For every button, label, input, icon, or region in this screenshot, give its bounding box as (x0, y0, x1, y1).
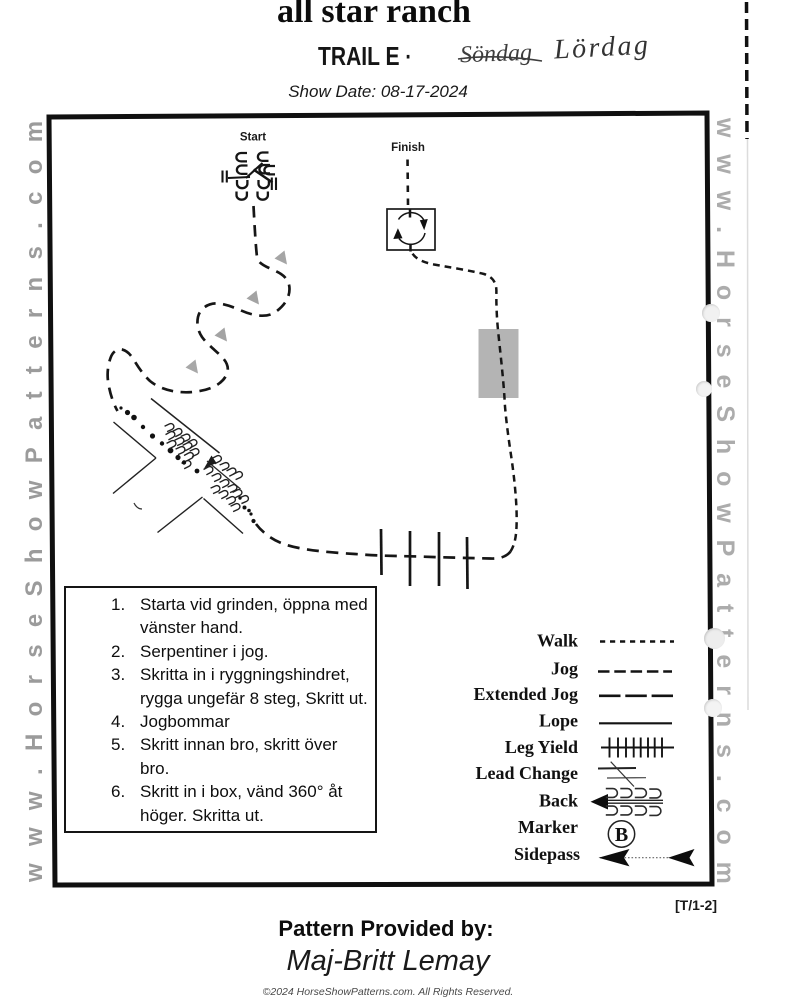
svg-text:Extended Jog: Extended Jog (473, 684, 578, 704)
svg-text:Lead Change: Lead Change (475, 763, 578, 783)
svg-text:Back: Back (539, 791, 578, 811)
svg-text:Sidepass: Sidepass (514, 844, 580, 864)
svg-text:B: B (615, 824, 628, 846)
svg-text:Finish: Finish (391, 142, 425, 154)
svg-text:Leg Yield: Leg Yield (505, 737, 578, 757)
svg-text:Lope: Lope (539, 711, 578, 731)
svg-text:Walk: Walk (537, 631, 578, 651)
svg-text:Marker: Marker (518, 817, 578, 837)
svg-text:Jog: Jog (551, 659, 578, 679)
svg-text:Start: Start (240, 132, 266, 144)
